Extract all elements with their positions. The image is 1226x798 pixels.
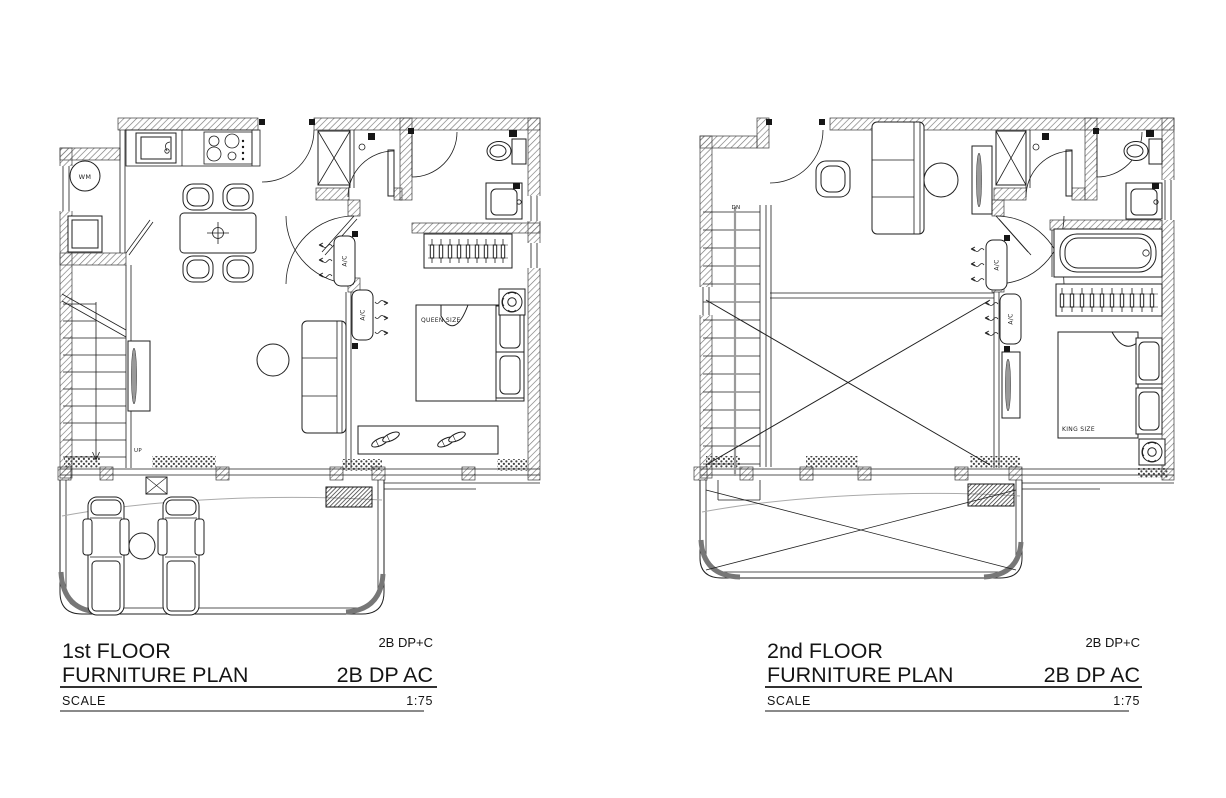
tv-screen bbox=[1005, 359, 1010, 411]
tv-console bbox=[1002, 352, 1020, 418]
pillow bbox=[1139, 392, 1159, 430]
sofa bbox=[302, 321, 346, 433]
ceiling-fan bbox=[499, 289, 525, 315]
sun-lounger bbox=[83, 497, 129, 615]
king-bed-label: KING SIZE bbox=[1062, 426, 1095, 433]
floor1-shower-room bbox=[318, 131, 394, 197]
floor1-wardrobe bbox=[424, 234, 512, 268]
window-sill-hatch bbox=[64, 456, 100, 468]
kitchen-sink bbox=[136, 133, 176, 163]
toilet bbox=[1124, 130, 1162, 164]
floor1-bedroom: QUEEN SIZE bbox=[358, 289, 525, 454]
ac-lower-label: A/C bbox=[360, 309, 367, 320]
floor2-stairs: DN bbox=[703, 205, 771, 500]
planter-hatched bbox=[326, 487, 372, 507]
tv-screen bbox=[976, 153, 981, 207]
window-sill-hatch bbox=[497, 459, 527, 471]
floor2-scale-value: 1:75 bbox=[1113, 694, 1140, 708]
door-hinge-mark bbox=[309, 119, 315, 125]
shower-drain bbox=[368, 133, 375, 140]
tv-console bbox=[972, 146, 992, 214]
floor1-living-room bbox=[128, 321, 346, 433]
floor1-laundry: WM bbox=[68, 161, 153, 255]
floor1-title-line1: 1st FLOOR bbox=[62, 639, 171, 663]
king-bed bbox=[1058, 332, 1138, 438]
side-table bbox=[129, 533, 155, 559]
shower-head bbox=[359, 144, 365, 150]
shower-head bbox=[1033, 144, 1039, 150]
floor2-shower-room bbox=[996, 131, 1072, 197]
pillow bbox=[500, 356, 520, 394]
window-sill-hatch bbox=[152, 456, 216, 468]
floor1-title-block: 1st FLOOR FURNITURE PLAN 2B DP+C 2B DP A… bbox=[60, 635, 437, 711]
floor2-title-line1: 2nd FLOOR bbox=[767, 639, 883, 663]
floor1-entry-door bbox=[259, 119, 315, 182]
basin bbox=[486, 183, 522, 219]
planter-hatched bbox=[968, 484, 1014, 506]
floor1-plan: WM bbox=[58, 118, 541, 615]
floor2-terrace-roof bbox=[700, 480, 1174, 578]
floor1-scale-value: 1:75 bbox=[406, 694, 433, 708]
ceiling-fan bbox=[1139, 439, 1165, 465]
ac-upper-label: A/C bbox=[994, 259, 1001, 270]
ac-upper-label: A/C bbox=[342, 255, 349, 266]
armchair bbox=[816, 161, 850, 197]
kitchen-stove bbox=[204, 132, 252, 164]
washing-machine-label: WM bbox=[79, 173, 92, 181]
pillow bbox=[500, 310, 520, 348]
basin bbox=[1126, 183, 1162, 219]
toilet bbox=[487, 130, 526, 164]
shower-drain bbox=[1042, 133, 1049, 140]
floor2-bedroom: KING SIZE bbox=[1002, 332, 1165, 465]
floor1-title-line2: FURNITURE PLAN bbox=[62, 663, 248, 687]
floor2-wardrobe bbox=[1056, 284, 1162, 316]
floor2-title-line2: FURNITURE PLAN bbox=[767, 663, 953, 687]
floor2-plan: DN bbox=[694, 118, 1175, 578]
stair-direction-arrow bbox=[93, 302, 100, 460]
tv-screen bbox=[131, 348, 136, 404]
floor2-family-room bbox=[816, 122, 992, 234]
stair-direction-label: UP bbox=[134, 448, 142, 454]
floor1-terrace bbox=[60, 477, 540, 615]
floor2-void bbox=[706, 293, 994, 465]
floor1-scale-label: SCALE bbox=[62, 694, 106, 708]
floor2-ac-units: A/C A/C bbox=[971, 235, 1021, 352]
coffee-table bbox=[257, 344, 289, 376]
floor2-scale-label: SCALE bbox=[767, 694, 811, 708]
ac-lower-label: A/C bbox=[1008, 313, 1015, 324]
floor2-unit-code-small: 2B DP+C bbox=[1085, 635, 1140, 650]
shower-door-leaf bbox=[1066, 150, 1072, 196]
floor1-unit-code-large: 2B DP AC bbox=[337, 663, 433, 687]
door-hinge-mark bbox=[259, 119, 265, 125]
bathtub bbox=[1054, 229, 1162, 277]
bathroom-door bbox=[412, 132, 457, 177]
floor1-unit-code-small: 2B DP+C bbox=[378, 635, 433, 650]
floor1-kitchen bbox=[126, 130, 260, 166]
door-hinge-mark bbox=[819, 119, 825, 125]
floor2-title-block: 2nd FLOOR FURNITURE PLAN 2B DP+C 2B DP A… bbox=[765, 635, 1142, 711]
drawing-sheet: WM bbox=[0, 0, 1226, 798]
window-sill-hatch bbox=[806, 456, 858, 468]
door-hinge-mark bbox=[766, 119, 772, 125]
void-cross-lines bbox=[706, 300, 990, 465]
floor1-bathroom bbox=[408, 128, 526, 219]
floor2-unit-code-large: 2B DP AC bbox=[1044, 663, 1140, 687]
pillow bbox=[1139, 342, 1159, 380]
shower-door-leaf bbox=[388, 150, 394, 196]
stair-direction-label: DN bbox=[732, 205, 741, 211]
window-sill-hatch bbox=[1138, 468, 1168, 478]
closet-door-leaf bbox=[126, 220, 153, 255]
sun-lounger bbox=[158, 497, 204, 615]
round-table bbox=[924, 163, 958, 197]
window-sill-hatch bbox=[342, 459, 382, 471]
floor1-dining-set bbox=[180, 184, 256, 282]
queen-bed-label: QUEEN SIZE bbox=[421, 317, 461, 324]
sofa bbox=[872, 122, 924, 234]
floor-plan-drawing: WM bbox=[0, 0, 1226, 798]
